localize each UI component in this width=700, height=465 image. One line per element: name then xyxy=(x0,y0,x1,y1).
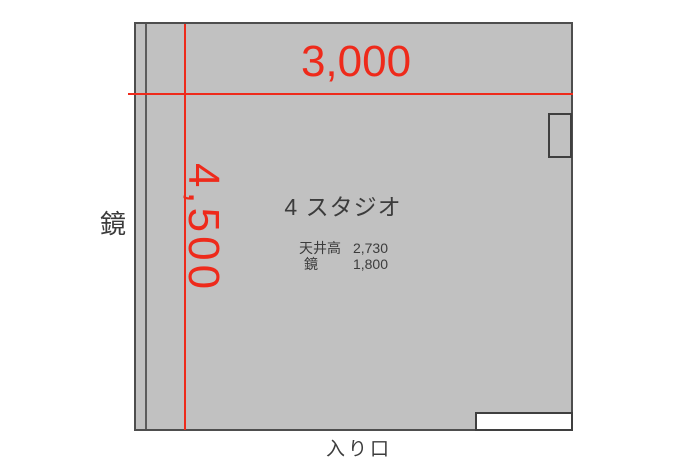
depth-dimension-label: 4,500 xyxy=(181,158,225,298)
room-notes: 天井高 2,730 鏡 1,800 xyxy=(299,240,388,272)
dimension-line-horizontal xyxy=(128,93,573,95)
floorplan-canvas: 3,000 4,500 4 スタジオ 天井高 2,730 鏡 1,800 鏡 入… xyxy=(0,0,700,465)
width-dimension-label: 3,000 xyxy=(280,40,432,84)
ceiling-height-note: 天井高 2,730 xyxy=(299,240,388,256)
ceiling-height-value: 2,730 xyxy=(353,240,388,256)
mirror-size-value: 1,800 xyxy=(353,256,388,272)
mirror-size-label: 鏡 xyxy=(299,256,318,272)
room-title: 4 スタジオ xyxy=(230,188,456,222)
entrance-door-opening xyxy=(475,412,573,431)
mirror-size-note: 鏡 1,800 xyxy=(299,256,388,272)
wall-niche xyxy=(548,113,572,158)
ceiling-height-label: 天井高 xyxy=(299,240,341,256)
mirror-wall-label: 鏡 xyxy=(100,204,126,241)
entrance-label: 入り口 xyxy=(326,434,392,461)
mirror-wall-inner-line xyxy=(145,24,147,429)
